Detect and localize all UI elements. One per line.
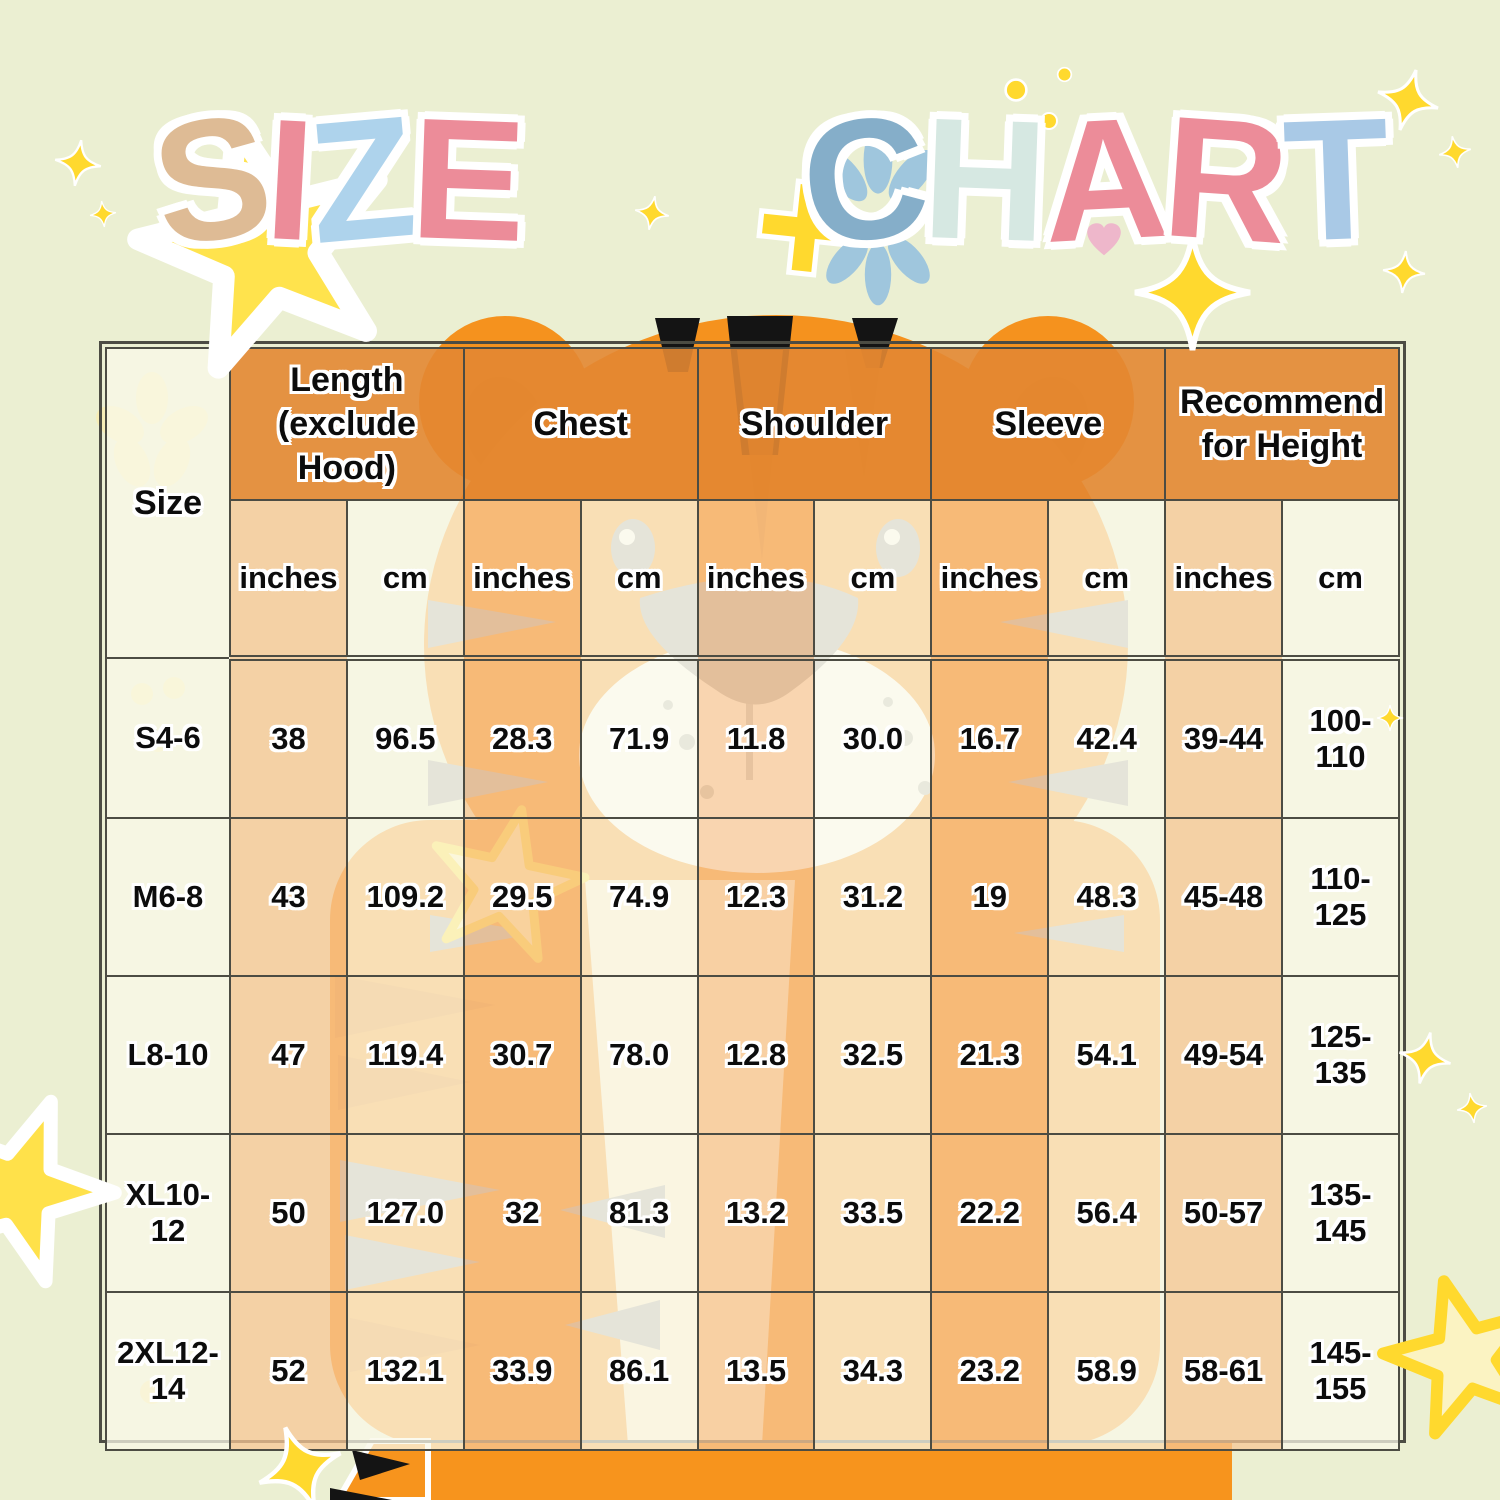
measure-cell: 58.9 — [1048, 1292, 1165, 1450]
measure-cell: 56.4 — [1048, 1134, 1165, 1292]
measure-cell: 125-135 — [1282, 976, 1399, 1134]
measure-cell: 74.9 — [581, 818, 698, 976]
measure-cell: 50 — [230, 1134, 347, 1292]
measure-cell: 78.0 — [581, 976, 698, 1134]
measure-cell: 132.1 — [347, 1292, 464, 1450]
table-row: 2XL12-1452132.133.986.113.534.323.258.95… — [106, 1292, 1399, 1450]
table-row: XL10-1250127.03281.313.233.522.256.450-5… — [106, 1134, 1399, 1292]
measure-cell: 45-48 — [1165, 818, 1282, 976]
unit-header: cm — [581, 500, 698, 658]
measure-cell: 22.2 — [931, 1134, 1048, 1292]
measure-cell: 100-110 — [1282, 658, 1399, 818]
title-letter: H — [920, 84, 1047, 277]
title-letter: S — [142, 79, 278, 282]
table-row: M6-843109.229.574.912.331.21948.345-4811… — [106, 818, 1399, 976]
measure-cell: 96.5 — [347, 658, 464, 818]
column-group-header: Shoulder — [698, 348, 932, 500]
size-table-frame: Size Length (exclude Hood)ChestShoulderS… — [99, 341, 1406, 1443]
measure-cell: 127.0 — [347, 1134, 464, 1292]
size-chart-table: Size Length (exclude Hood)ChestShoulderS… — [105, 347, 1400, 1451]
measure-cell: 49-54 — [1165, 976, 1282, 1134]
unit-header: inches — [931, 500, 1048, 658]
measure-cell: 119.4 — [347, 976, 464, 1134]
unit-header: cm — [814, 500, 931, 658]
title-letter: A — [1039, 83, 1169, 278]
measure-cell: 12.8 — [698, 976, 815, 1134]
unit-header: inches — [230, 500, 347, 658]
measure-cell: 109.2 — [347, 818, 464, 976]
measure-cell: 39-44 — [1165, 658, 1282, 818]
page-title: SIZECHART — [155, 86, 1385, 275]
measure-cell: 38 — [230, 658, 347, 818]
unit-header: inches — [1165, 500, 1282, 658]
measure-cell: 11.8 — [698, 658, 815, 818]
measure-cell: 30.0 — [814, 658, 931, 818]
measure-cell: 23.2 — [931, 1292, 1048, 1450]
measure-cell: 58-61 — [1165, 1292, 1282, 1450]
measure-cell: 28.3 — [464, 658, 581, 818]
size-row-header: 2XL12-14 — [106, 1292, 230, 1450]
column-group-header: Chest — [464, 348, 698, 500]
title-letter: E — [407, 84, 524, 277]
size-row-header: S4-6 — [106, 658, 230, 818]
column-group-header: Length (exclude Hood) — [230, 348, 464, 500]
unit-header: cm — [347, 500, 464, 658]
measure-cell: 33.9 — [464, 1292, 581, 1450]
measure-cell: 135-145 — [1282, 1134, 1399, 1292]
measure-cell: 29.5 — [464, 818, 581, 976]
measure-cell: 16.7 — [931, 658, 1048, 818]
size-row-header: L8-10 — [106, 976, 230, 1134]
measure-cell: 34.3 — [814, 1292, 931, 1450]
title-word: CHART — [803, 86, 1385, 275]
measure-cell: 54.1 — [1048, 976, 1165, 1134]
unit-header: cm — [1282, 500, 1399, 658]
table-row: L8-1047119.430.778.012.832.521.354.149-5… — [106, 976, 1399, 1134]
measure-cell: 48.3 — [1048, 818, 1165, 976]
table-row: S4-63896.528.371.911.830.016.742.439-441… — [106, 658, 1399, 818]
measure-cell: 47 — [230, 976, 347, 1134]
measure-cell: 71.9 — [581, 658, 698, 818]
size-row-header: XL10-12 — [106, 1134, 230, 1292]
column-group-header: Sleeve — [931, 348, 1165, 500]
measure-cell: 110-125 — [1282, 818, 1399, 976]
measure-cell: 145-155 — [1282, 1292, 1399, 1450]
unit-header-row: inchescminchescminchescminchescminchescm — [106, 500, 1399, 658]
size-row-header: M6-8 — [106, 818, 230, 976]
measure-cell: 12.3 — [698, 818, 815, 976]
unit-header: inches — [698, 500, 815, 658]
unit-header: inches — [464, 500, 581, 658]
column-group-header: Recommend for Height — [1165, 348, 1399, 500]
title-letter: Z — [301, 82, 418, 279]
measure-cell: 19 — [931, 818, 1048, 976]
unit-header: cm — [1048, 500, 1165, 658]
measure-cell: 21.3 — [931, 976, 1048, 1134]
measure-cell: 13.2 — [698, 1134, 815, 1292]
measure-cell: 32.5 — [814, 976, 931, 1134]
size-table-body: S4-63896.528.371.911.830.016.742.439-441… — [106, 658, 1399, 1450]
title-letter: R — [1157, 82, 1290, 279]
measure-cell: 32 — [464, 1134, 581, 1292]
measure-cell: 81.3 — [581, 1134, 698, 1292]
measure-cell: 52 — [230, 1292, 347, 1450]
group-header-row: Size Length (exclude Hood)ChestShoulderS… — [106, 348, 1399, 500]
measure-cell: 43 — [230, 818, 347, 976]
measure-cell: 50-57 — [1165, 1134, 1282, 1292]
size-column-header: Size — [106, 348, 230, 658]
measure-cell: 42.4 — [1048, 658, 1165, 818]
measure-cell: 33.5 — [814, 1134, 931, 1292]
measure-cell: 13.5 — [698, 1292, 815, 1450]
title-letter: T — [1281, 84, 1389, 277]
size-chart-infographic: Size Length (exclude Hood)ChestShoulderS… — [0, 0, 1500, 1500]
title-word: SIZE — [155, 86, 521, 275]
measure-cell: 31.2 — [814, 818, 931, 976]
measure-cell: 86.1 — [581, 1292, 698, 1450]
measure-cell: 30.7 — [464, 976, 581, 1134]
title-letter: C — [793, 80, 932, 281]
